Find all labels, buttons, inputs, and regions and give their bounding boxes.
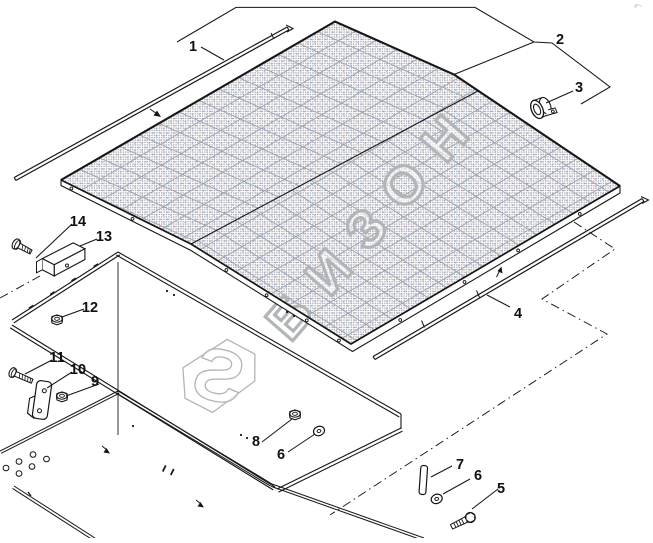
svg-text:5: 5 xyxy=(497,481,505,497)
svg-text:6: 6 xyxy=(277,447,285,463)
svg-text:8: 8 xyxy=(252,434,260,450)
svg-text:11: 11 xyxy=(49,350,64,366)
svg-text:3: 3 xyxy=(575,80,583,96)
svg-text:9: 9 xyxy=(91,374,99,390)
svg-text:6: 6 xyxy=(474,468,482,484)
svg-text:10: 10 xyxy=(70,362,86,378)
svg-text:14: 14 xyxy=(70,214,86,230)
svg-text:#''~: #''~ xyxy=(634,4,642,10)
svg-text:7: 7 xyxy=(456,457,464,473)
svg-text:1: 1 xyxy=(189,39,197,55)
svg-text:4: 4 xyxy=(514,306,522,322)
svg-text:2: 2 xyxy=(556,32,564,48)
svg-text:13: 13 xyxy=(96,229,112,245)
svg-text:12: 12 xyxy=(82,300,98,316)
